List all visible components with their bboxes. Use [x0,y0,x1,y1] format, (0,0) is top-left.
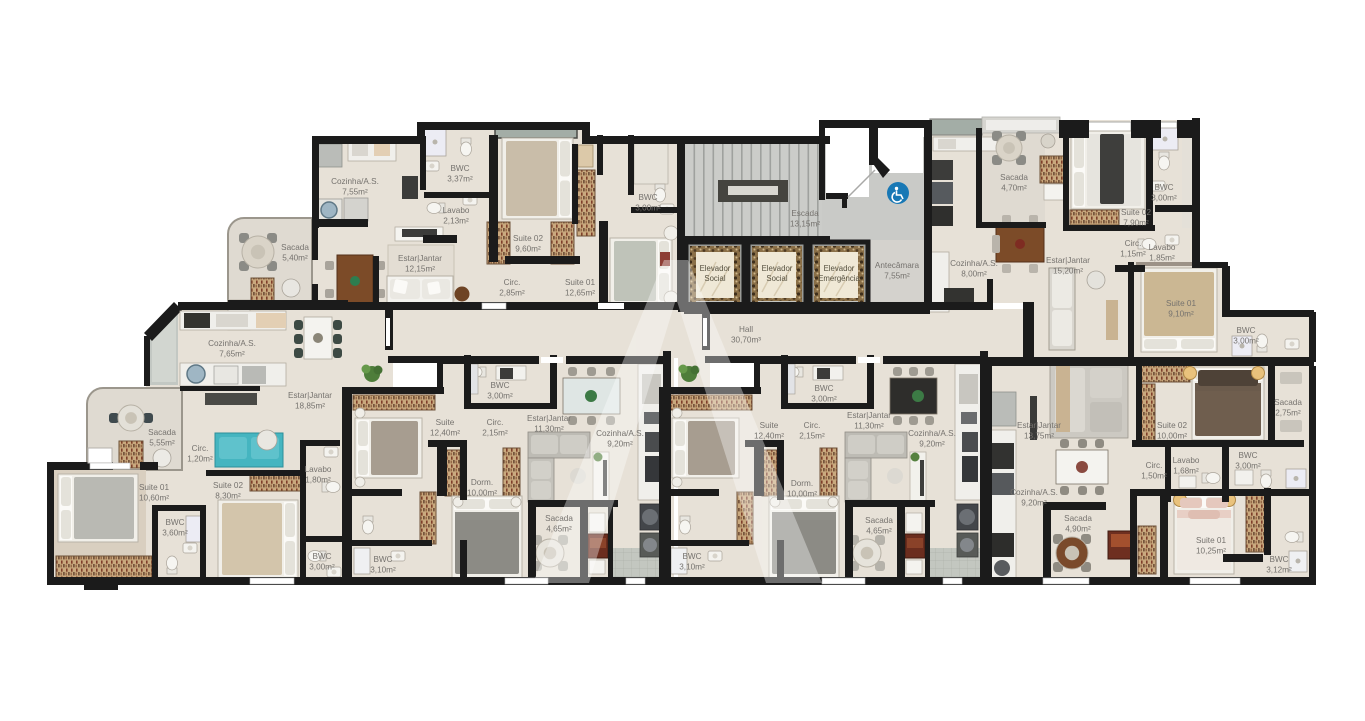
svg-text:12,40m²: 12,40m² [754,432,784,441]
svg-text:BWC: BWC [638,193,657,202]
svg-text:13,75m²: 13,75m² [1024,432,1054,441]
svg-text:3,00m²: 3,00m² [635,204,661,213]
svg-text:12,40m²: 12,40m² [430,429,460,438]
svg-text:Sacada: Sacada [148,428,176,437]
svg-text:Suite 02: Suite 02 [1121,208,1151,217]
svg-text:Lavabo: Lavabo [1149,243,1176,252]
svg-text:3,37m²: 3,37m² [447,175,473,184]
svg-text:15,20m²: 15,20m² [1053,267,1083,276]
svg-text:1,80m²: 1,80m² [305,476,331,485]
svg-text:Cozinha/A.S.: Cozinha/A.S. [950,259,998,268]
svg-text:Lavabo: Lavabo [1173,456,1200,465]
svg-text:BWC: BWC [1154,183,1173,192]
svg-text:2,75m²: 2,75m² [1275,409,1301,418]
svg-text:3,00m²: 3,00m² [309,563,335,572]
svg-text:BWC: BWC [1269,555,1288,564]
svg-text:Social: Social [766,274,788,283]
svg-text:Circ.: Circ. [504,278,521,287]
svg-text:Dorm.: Dorm. [471,478,493,487]
svg-text:Lavabo: Lavabo [443,206,470,215]
svg-text:2,13m²: 2,13m² [443,217,469,226]
svg-text:4,65m²: 4,65m² [866,527,892,536]
svg-text:30,70m³: 30,70m³ [731,336,761,345]
svg-text:Elevador: Elevador [824,264,855,273]
svg-text:Estar|Jantar: Estar|Jantar [847,411,891,420]
svg-text:Suite 01: Suite 01 [565,278,595,287]
svg-text:4,65m²: 4,65m² [546,525,572,534]
svg-text:10,60m²: 10,60m² [139,494,169,503]
svg-text:10,00m²: 10,00m² [467,489,497,498]
svg-text:BWC: BWC [450,164,469,173]
svg-text:Antecâmara: Antecâmara [875,261,920,270]
svg-text:1,15m²: 1,15m² [1120,250,1146,259]
svg-text:3,12m²: 3,12m² [1266,566,1292,575]
svg-text:BWC: BWC [312,552,331,561]
svg-text:Sacada: Sacada [1274,398,1302,407]
svg-text:BWC: BWC [165,518,184,527]
svg-text:5,55m²: 5,55m² [149,439,175,448]
svg-text:18,85m²: 18,85m² [295,402,325,411]
svg-text:8,00m²: 8,00m² [961,270,987,279]
svg-text:10,00m²: 10,00m² [787,490,817,499]
svg-text:3,00m²: 3,00m² [811,395,837,404]
svg-text:Suite: Suite [436,418,455,427]
svg-text:Emergência: Emergência [818,274,860,283]
svg-text:Cozinha/A.S.: Cozinha/A.S. [908,429,956,438]
svg-text:7,90m²: 7,90m² [1123,219,1149,228]
svg-text:Sacada: Sacada [281,243,309,252]
svg-text:Cozinha/A.S.: Cozinha/A.S. [596,429,644,438]
svg-text:9,60m²: 9,60m² [515,245,541,254]
svg-text:1,50m²: 1,50m² [1141,472,1167,481]
svg-text:4,70m²: 4,70m² [1001,184,1027,193]
svg-text:Escada: Escada [791,209,819,218]
svg-text:Cozinha/A.S.: Cozinha/A.S. [331,177,379,186]
svg-text:Sacada: Sacada [865,516,893,525]
svg-text:BWC: BWC [490,381,509,390]
svg-text:Elevador: Elevador [700,264,731,273]
svg-text:3,00m²: 3,00m² [1235,462,1261,471]
svg-text:2,15m²: 2,15m² [799,432,825,441]
svg-text:11,30m²: 11,30m² [534,425,564,434]
svg-text:Estar|Jantar: Estar|Jantar [527,414,571,423]
svg-text:4,90m²: 4,90m² [1065,525,1091,534]
svg-text:BWC: BWC [682,552,701,561]
svg-text:12,65m²: 12,65m² [565,289,595,298]
svg-text:Social: Social [704,274,726,283]
svg-text:Cozinha/A.S.: Cozinha/A.S. [1010,488,1058,497]
svg-text:1,20m²: 1,20m² [187,455,213,464]
svg-text:5,40m²: 5,40m² [282,254,308,263]
svg-text:Lavabo: Lavabo [305,465,332,474]
svg-text:8,30m²: 8,30m² [215,492,241,501]
svg-text:3,00m²: 3,00m² [487,392,513,401]
svg-text:Suite 01: Suite 01 [1166,299,1196,308]
svg-text:BWC: BWC [1236,326,1255,335]
svg-text:Sacada: Sacada [1000,173,1028,182]
svg-text:9,20m²: 9,20m² [919,440,945,449]
svg-text:11,30m²: 11,30m² [854,422,884,431]
svg-text:Estar|Jantar: Estar|Jantar [1046,256,1090,265]
svg-text:2,15m²: 2,15m² [482,429,508,438]
svg-text:7,55m²: 7,55m² [342,188,368,197]
svg-text:10,00m²: 10,00m² [1157,432,1187,441]
svg-text:Suite 01: Suite 01 [139,483,169,492]
svg-text:1,85m²: 1,85m² [1149,254,1175,263]
svg-text:BWC: BWC [1238,451,1257,460]
svg-text:Sacada: Sacada [545,514,573,523]
svg-text:Estar|Jantar: Estar|Jantar [1017,421,1061,430]
svg-text:Estar|Jantar: Estar|Jantar [398,254,442,263]
svg-text:Hall: Hall [739,325,753,334]
svg-text:7,65m²: 7,65m² [219,350,245,359]
svg-text:3,00m²: 3,00m² [1151,194,1177,203]
svg-text:2,85m²: 2,85m² [499,289,525,298]
svg-text:7,55m²: 7,55m² [884,272,910,281]
svg-text:Circ.: Circ. [804,421,821,430]
svg-text:Sacada: Sacada [1064,514,1092,523]
svg-text:Elevador: Elevador [762,264,793,273]
svg-text:BWC: BWC [373,555,392,564]
svg-text:Circ.: Circ. [487,418,504,427]
svg-text:Estar|Jantar: Estar|Jantar [288,391,332,400]
svg-text:9,20m²: 9,20m² [607,440,633,449]
svg-text:9,20m²: 9,20m² [1021,499,1047,508]
svg-text:Suite 01: Suite 01 [1196,536,1226,545]
svg-text:12,15m²: 12,15m² [405,265,435,274]
svg-text:3,00m²: 3,00m² [1233,337,1259,346]
svg-text:3,10m²: 3,10m² [679,563,705,572]
svg-text:BWC: BWC [814,384,833,393]
svg-text:Suite 02: Suite 02 [513,234,543,243]
svg-text:Suite 02: Suite 02 [213,481,243,490]
svg-text:Cozinha/A.S.: Cozinha/A.S. [208,339,256,348]
svg-text:3,60m²: 3,60m² [162,529,188,538]
svg-text:9,10m²: 9,10m² [1168,310,1194,319]
svg-text:Dorm.: Dorm. [791,479,813,488]
svg-text:1,68m²: 1,68m² [1173,467,1199,476]
svg-text:Suite: Suite [760,421,779,430]
svg-text:Circ.: Circ. [1146,461,1163,470]
svg-text:Suite 02: Suite 02 [1157,421,1187,430]
svg-text:10,25m²: 10,25m² [1196,547,1226,556]
svg-text:3,10m²: 3,10m² [370,566,396,575]
svg-text:Circ.: Circ. [192,444,209,453]
svg-text:13,15m²: 13,15m² [790,220,820,229]
svg-text:Circ.: Circ. [1125,239,1142,248]
